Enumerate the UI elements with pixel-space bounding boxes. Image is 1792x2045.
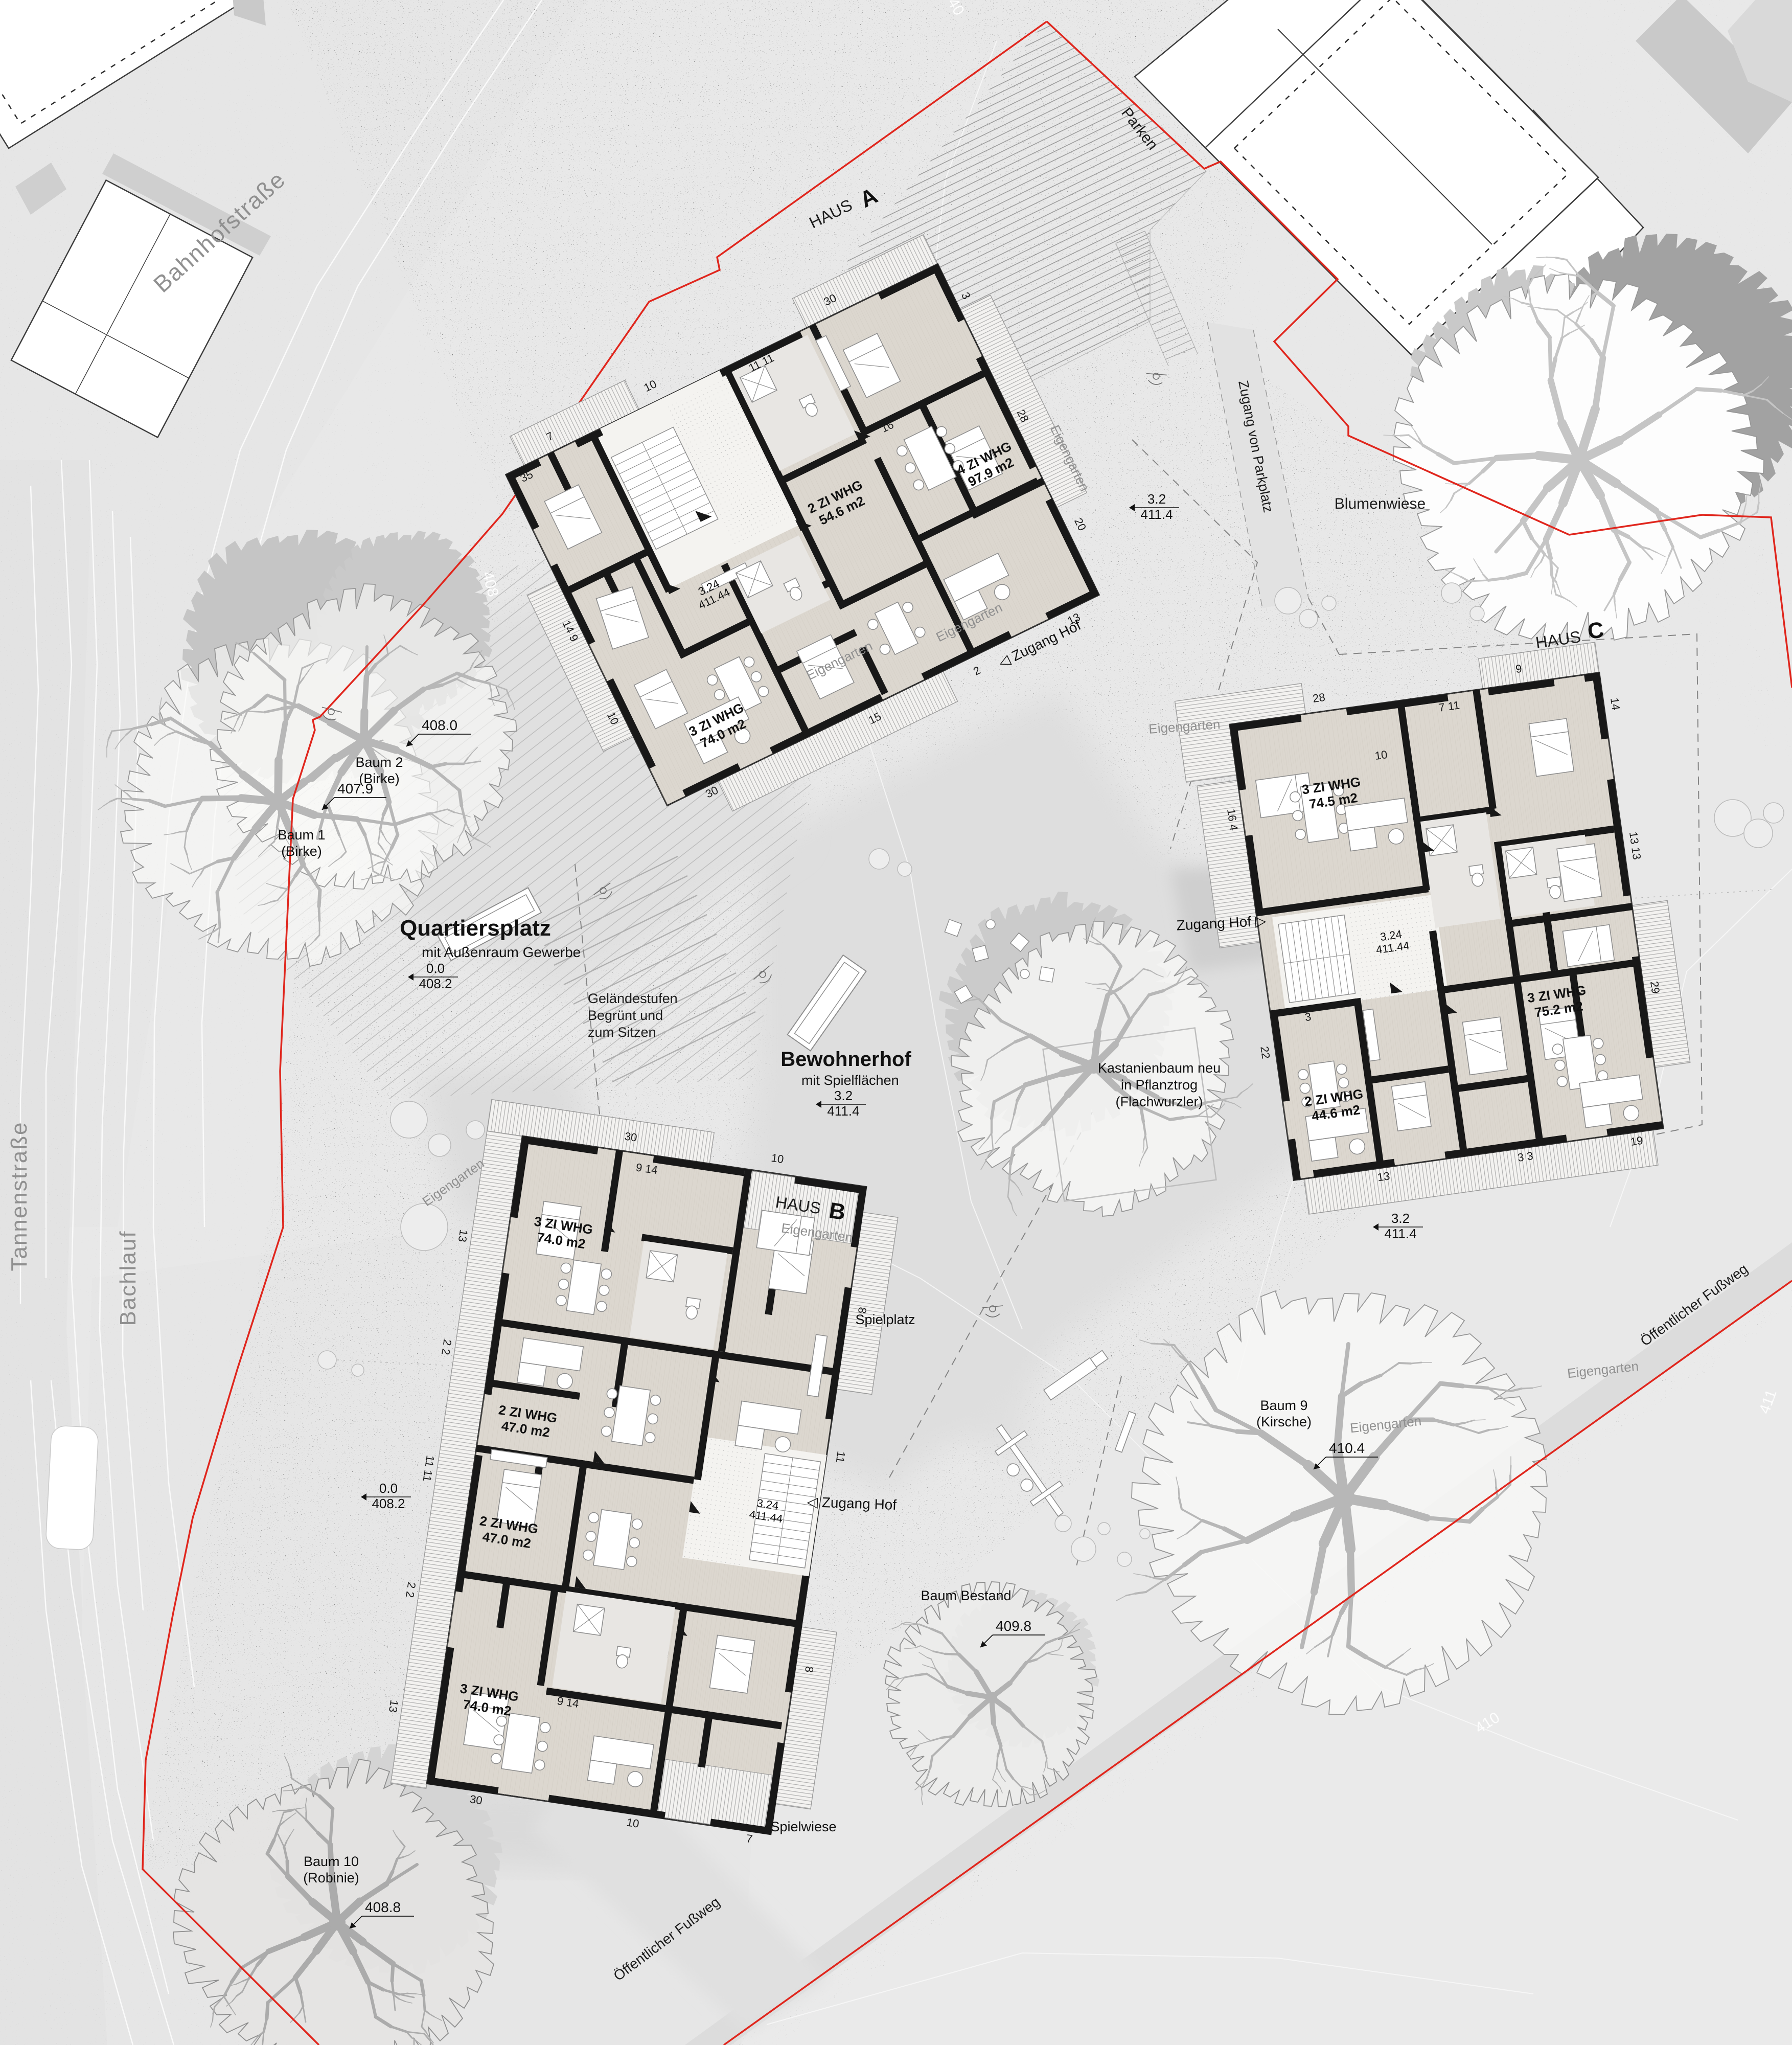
- svg-text:Baum 1: Baum 1: [278, 827, 325, 843]
- svg-text:14: 14: [1608, 697, 1622, 711]
- svg-text:mit Spielflächen: mit Spielflächen: [801, 1073, 899, 1088]
- svg-text:13: 13: [386, 1699, 401, 1713]
- svg-text:411.4: 411.4: [1140, 507, 1173, 522]
- svg-text:Bachlauf: Bachlauf: [116, 1230, 141, 1326]
- svg-text:0.0: 0.0: [379, 1481, 398, 1496]
- svg-text:◁ Zugang Hof: ◁ Zugang Hof: [807, 1494, 897, 1513]
- svg-text:408.8: 408.8: [365, 1899, 401, 1915]
- svg-text:Spielwiese: Spielwiese: [770, 1819, 836, 1834]
- svg-text:mit Außenraum Gewerbe: mit Außenraum Gewerbe: [422, 944, 581, 960]
- svg-text:(Birke): (Birke): [281, 844, 322, 859]
- svg-text:409.8: 409.8: [996, 1618, 1031, 1634]
- svg-text:Baum Bestand: Baum Bestand: [921, 1588, 1011, 1603]
- svg-text:22: 22: [1258, 1046, 1272, 1060]
- svg-text:3.2: 3.2: [834, 1088, 853, 1103]
- svg-text:(Flachwurzler): (Flachwurzler): [1115, 1094, 1203, 1109]
- svg-text:11: 11: [834, 1450, 848, 1464]
- svg-text:10: 10: [1374, 748, 1388, 762]
- svg-text:Baum 10: Baum 10: [304, 1854, 359, 1869]
- svg-text:411.4: 411.4: [827, 1103, 859, 1119]
- svg-text:411.4: 411.4: [1384, 1226, 1416, 1241]
- svg-text:Baum 2: Baum 2: [355, 755, 403, 770]
- svg-text:Begrünt und: Begrünt und: [588, 1008, 663, 1023]
- svg-text:10: 10: [626, 1816, 640, 1830]
- svg-text:Baum 9: Baum 9: [1260, 1398, 1307, 1413]
- svg-text:408.2: 408.2: [419, 976, 452, 991]
- svg-text:3.2: 3.2: [1147, 491, 1166, 507]
- svg-text:408.0: 408.0: [422, 717, 457, 733]
- svg-text:2 2: 2 2: [403, 1581, 418, 1599]
- svg-text:0.0: 0.0: [426, 961, 445, 976]
- svg-text:30: 30: [624, 1130, 638, 1144]
- svg-text:Bewohnerhof: Bewohnerhof: [780, 1048, 911, 1071]
- svg-text:Tannenstraße: Tannenstraße: [7, 1121, 32, 1271]
- svg-text:C: C: [1586, 617, 1605, 644]
- svg-text:28: 28: [1312, 691, 1326, 705]
- svg-text:Kastanienbaum neu: Kastanienbaum neu: [1098, 1060, 1221, 1076]
- svg-text:Quartiersplatz: Quartiersplatz: [400, 916, 551, 941]
- svg-text:408.2: 408.2: [372, 1496, 405, 1511]
- svg-text:3 3: 3 3: [1517, 1149, 1534, 1164]
- svg-text:407.9: 407.9: [337, 781, 373, 797]
- svg-text:13: 13: [456, 1229, 470, 1243]
- svg-text:(Robinie): (Robinie): [303, 1870, 359, 1885]
- svg-text:(Kirsche): (Kirsche): [1256, 1414, 1312, 1429]
- svg-text:in Pflanztrog: in Pflanztrog: [1121, 1077, 1198, 1093]
- svg-text:Spielplatz: Spielplatz: [855, 1312, 915, 1327]
- svg-text:30: 30: [469, 1792, 484, 1807]
- svg-text:Blumenwiese: Blumenwiese: [1335, 495, 1426, 512]
- svg-text:Geländestufen: Geländestufen: [588, 991, 678, 1006]
- svg-text:2 2: 2 2: [439, 1338, 454, 1356]
- svg-text:410.4: 410.4: [1329, 1440, 1365, 1456]
- svg-text:19: 19: [1629, 1134, 1644, 1148]
- svg-text:29: 29: [1648, 981, 1662, 995]
- svg-text:13: 13: [1376, 1169, 1391, 1184]
- svg-text:zum Sitzen: zum Sitzen: [588, 1025, 656, 1040]
- svg-text:10: 10: [770, 1151, 785, 1166]
- svg-text:3.2: 3.2: [1391, 1211, 1410, 1226]
